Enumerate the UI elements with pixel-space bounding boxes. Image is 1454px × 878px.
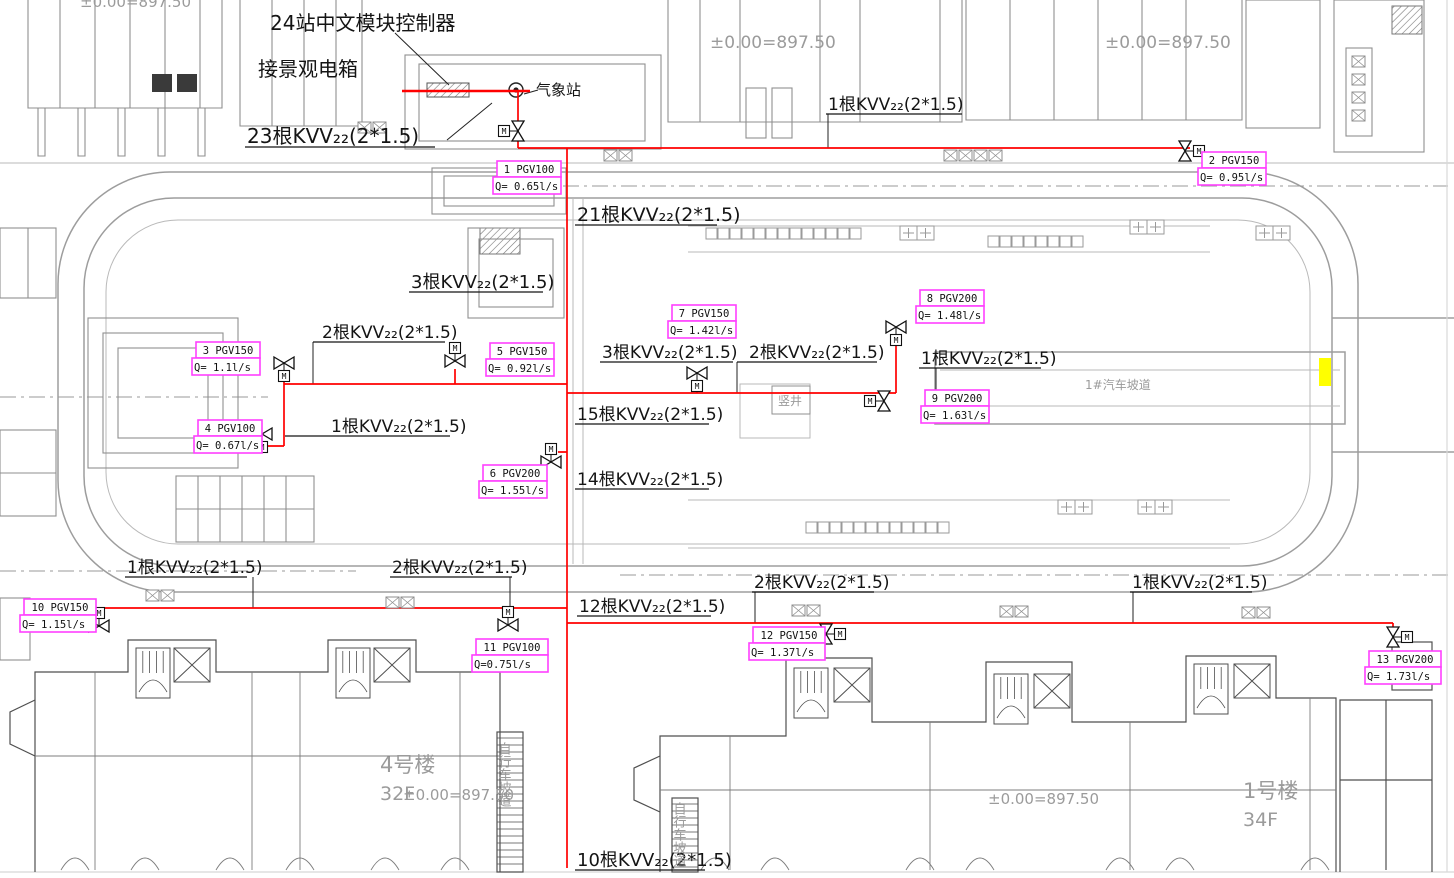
hatch-structure: [480, 228, 520, 254]
motorized-valve-icon: M: [687, 367, 707, 392]
landscape-box-note: 接景观电箱: [258, 57, 358, 81]
top-buildings: [28, 0, 1424, 156]
pgv-valve-label: 3 PGV150Q= 1.1l/s: [192, 342, 260, 375]
parking-cell: [1000, 236, 1011, 247]
pgv-flow-label: Q= 0.65l/s: [495, 181, 558, 193]
drain-grate-icon: [1242, 607, 1255, 618]
valve-actuator-label: M: [838, 630, 843, 639]
valve-actuator-label: M: [506, 608, 511, 617]
highlight-marker: [1319, 358, 1331, 386]
kvv-cable-label: 2根KVV₂₂(2*1.5): [392, 558, 527, 578]
pgv-valve-label: 2 PGV150Q= 0.95l/s: [1198, 152, 1266, 185]
building-1-floors: 34F: [1243, 809, 1278, 831]
pgv-valve-label: 11 PGV100Q=0.75l/s: [472, 639, 548, 672]
pgv-valve-label: 12 PGV150Q= 1.37l/s: [749, 627, 825, 660]
pgv-id-label: 10 PGV150: [32, 602, 89, 614]
pgv-id-label: 1 PGV100: [504, 164, 555, 176]
pgv-valve-label: 8 PGV200Q= 1.48l/s: [916, 290, 984, 323]
motorized-valve-icon: M: [499, 121, 525, 141]
entrance-porch: [634, 756, 660, 812]
building-4: [10, 640, 523, 872]
level-note-top-right: ±0.00=897.50: [1105, 33, 1231, 53]
drain-grate-icon: [1257, 607, 1270, 618]
pgv-valve-label: 9 PGV200Q= 1.63l/s: [921, 390, 989, 423]
motorized-valve-icon: M: [445, 343, 465, 368]
drain-grate-icon: [386, 597, 399, 608]
parking-cell: [1036, 236, 1047, 247]
valve-actuator-label: M: [282, 372, 287, 381]
parking-strips: [706, 228, 1083, 533]
controller-note: 24站中文模块控制器: [270, 11, 455, 35]
motorized-valve-icon: M: [1387, 627, 1413, 647]
parking-cell: [742, 228, 753, 239]
kvv-cable-labels: 23根KVV₂₂(2*1.5)1根KVV₂₂(2*1.5)21根KVV₂₂(2*…: [125, 95, 1267, 871]
pgv-flow-label: Q= 0.67l/s: [196, 440, 259, 452]
valve-actuator-label: M: [868, 397, 873, 406]
car-ramp-note: 1#汽车坡道: [1085, 377, 1151, 392]
drain-grate-icon: [792, 605, 805, 616]
red-cable-network: [100, 91, 1393, 868]
pgv-flow-label: Q= 0.95l/s: [1200, 172, 1263, 184]
drain-grate-icon: [1352, 92, 1365, 103]
drain-grate-icon: [604, 150, 617, 161]
parking-cell: [1024, 236, 1035, 247]
drain-grate-icon: [807, 605, 820, 616]
drain-grate-icon: [1015, 606, 1028, 617]
parking-cell: [826, 228, 837, 239]
drain-grate-icon: [1352, 74, 1365, 85]
pgv-valve-label: 5 PGV150Q= 0.92l/s: [486, 343, 554, 376]
entrance-porch: [10, 700, 35, 756]
level-note-top-center: ±0.00=897.50: [710, 33, 836, 53]
pgv-id-label: 5 PGV150: [497, 346, 548, 358]
motorized-valve-icon: M: [1179, 141, 1205, 161]
parking-cell: [890, 522, 901, 533]
pgv-valve-label: 10 PGV150Q= 1.15l/s: [20, 599, 96, 632]
pgv-id-label: 7 PGV150: [679, 308, 730, 320]
parking-cell: [778, 228, 789, 239]
drain-grate-icon: [974, 150, 987, 161]
parking-cell: [854, 522, 865, 533]
pgv-valve-label: 6 PGV200Q= 1.55l/s: [479, 465, 547, 498]
pgv-id-label: 9 PGV200: [932, 393, 983, 405]
parking-cell: [730, 228, 741, 239]
drain-grate-icon: [161, 590, 174, 601]
valve-actuator-label: M: [1405, 633, 1410, 642]
parking-cell: [706, 228, 717, 239]
parking-cell: [902, 522, 913, 533]
kvv-cable-label: 1根KVV₂₂(2*1.5): [1132, 573, 1267, 593]
kvv-cable-label: 1根KVV₂₂(2*1.5): [127, 558, 262, 578]
valve-actuator-label: M: [695, 382, 700, 391]
stair-icon: [336, 648, 370, 698]
parking-cell: [802, 228, 813, 239]
parking-cell: [1048, 236, 1059, 247]
parking-cell: [1072, 236, 1083, 247]
kvv-cable-label: 15根KVV₂₂(2*1.5): [577, 405, 723, 425]
kvv-cable-label: 3根KVV₂₂(2*1.5): [602, 343, 737, 363]
kvv-cable-label: 10根KVV₂₂(2*1.5): [577, 850, 732, 871]
bike-ramp-note-1: 自行车坡道: [496, 742, 512, 807]
parking-cell: [830, 522, 841, 533]
building-4-name: 4号楼: [380, 753, 435, 777]
parking-cell: [842, 522, 853, 533]
kvv-cable-label: 12根KVV₂₂(2*1.5): [579, 597, 725, 617]
parking-cell: [878, 522, 889, 533]
stair-icon: [994, 674, 1028, 724]
parking-cell: [818, 522, 829, 533]
pgv-valve-label: 7 PGV150Q= 1.42l/s: [668, 305, 736, 338]
kvv-cable-label: 2根KVV₂₂(2*1.5): [754, 573, 889, 593]
pgv-id-label: 8 PGV200: [927, 293, 978, 305]
kvv-cable-label: 1根KVV₂₂(2*1.5): [331, 417, 466, 437]
kvv-cable-label: 3根KVV₂₂(2*1.5): [411, 272, 554, 293]
valve-actuator-label: M: [97, 609, 102, 618]
kvv-cable-label: 14根KVV₂₂(2*1.5): [577, 470, 723, 490]
drain-grate-icon: [1000, 606, 1013, 617]
controller-compound: [405, 55, 661, 149]
pgv-valve-label: 13 PGV200Q= 1.73l/s: [1365, 651, 1441, 684]
parking-cell: [988, 236, 999, 247]
parking-cell: [850, 228, 861, 239]
stair-icon: [794, 668, 828, 718]
pgv-flow-label: Q= 1.73l/s: [1367, 671, 1430, 683]
pgv-valve-label: 1 PGV100Q= 0.65l/s: [493, 161, 561, 194]
electric-box: [177, 74, 197, 92]
site-plan-svg: MMMMMMMMMMMMM 23根KVV₂₂(2*1.5)1根KVV₂₂(2*1…: [0, 0, 1454, 878]
drain-grate-icon: [989, 150, 1002, 161]
parking-cell: [914, 522, 925, 533]
kvv-cable-label: 1根KVV₂₂(2*1.5): [828, 95, 963, 115]
stair-elevator-cores: [136, 648, 1270, 724]
pgv-flow-label: Q= 1.15l/s: [22, 619, 85, 631]
pgv-flow-label: Q= 1.42l/s: [670, 325, 733, 337]
building-4-floors: 32F: [380, 783, 415, 805]
motorized-valve-icon: M: [865, 391, 891, 411]
parking-cell: [754, 228, 765, 239]
pgv-flow-label: Q= 1.55l/s: [481, 485, 544, 497]
kvv-cable-label: 23根KVV₂₂(2*1.5): [247, 124, 419, 148]
pgv-flow-label: Q= 1.37l/s: [751, 647, 814, 659]
drain-grate-icon: [401, 597, 414, 608]
drain-grate-icon: [944, 150, 957, 161]
parking-cell: [806, 522, 817, 533]
building-1: [634, 656, 1336, 872]
level-note-bottom-mid: ±0.00=897.50: [988, 790, 1099, 808]
pgv-id-label: 12 PGV150: [761, 630, 818, 642]
motorized-valve-icon: M: [886, 321, 906, 346]
pgv-id-label: 2 PGV150: [1209, 155, 1260, 167]
shaft-note: 竖井: [778, 394, 802, 408]
drain-grate-icon: [959, 150, 972, 161]
kvv-cable-label: 21根KVV₂₂(2*1.5): [577, 204, 741, 226]
kvv-cable-label: 2根KVV₂₂(2*1.5): [749, 343, 884, 363]
electric-box: [152, 74, 172, 92]
level-note-top-left: ±0.00=897.50: [80, 0, 191, 11]
pgv-id-label: 13 PGV200: [1377, 654, 1434, 666]
site-plan-canvas: MMMMMMMMMMMMM 23根KVV₂₂(2*1.5)1根KVV₂₂(2*1…: [0, 0, 1454, 878]
pgv-id-label: 4 PGV100: [205, 423, 256, 435]
drain-grate-icon: [1352, 110, 1365, 121]
drain-grate-icon: [619, 150, 632, 161]
drain-grate-icon: [1352, 56, 1365, 67]
valve-actuator-label: M: [502, 127, 507, 136]
ramp-rungs: [497, 738, 698, 867]
pgv-id-label: 3 PGV150: [203, 345, 254, 357]
drain-grate-icon: [146, 590, 159, 601]
parking-cell: [1012, 236, 1023, 247]
parking-cell: [838, 228, 849, 239]
pgv-flow-label: Q= 1.1l/s: [194, 362, 251, 374]
parking-cell: [1060, 236, 1071, 247]
parking-cell: [866, 522, 877, 533]
parking-cell: [814, 228, 825, 239]
leader-kvv23: [447, 103, 492, 140]
bike-ramp-note-2: 自行车坡道: [671, 802, 687, 867]
motorized-valve-icon: M: [498, 607, 518, 632]
pgv-valve-label: 4 PGV100Q= 0.67l/s: [194, 420, 262, 453]
stair-icon: [136, 648, 170, 698]
pgv-id-label: 11 PGV100: [484, 642, 541, 654]
valve-actuator-label: M: [453, 344, 458, 353]
building-1-name: 1号楼: [1243, 779, 1298, 803]
pgv-flow-label: Q= 1.63l/s: [923, 410, 986, 422]
valve-actuator-label: M: [1197, 147, 1202, 156]
parking-cell: [938, 522, 949, 533]
valve-actuator-label: M: [894, 336, 899, 345]
kvv-cable-label: 1根KVV₂₂(2*1.5): [921, 349, 1056, 369]
motorized-valve-icon: M: [274, 357, 294, 382]
valve-actuator-label: M: [549, 445, 554, 454]
leader-controller: [395, 33, 449, 85]
pgv-flow-label: Q= 1.48l/s: [918, 310, 981, 322]
stair-icon: [1194, 664, 1228, 714]
pgv-flow-label: Q=0.75l/s: [474, 659, 531, 671]
weather-station-note: 气象站: [536, 81, 581, 99]
parking-cell: [718, 228, 729, 239]
parking-cell: [790, 228, 801, 239]
kvv-cable-label: 2根KVV₂₂(2*1.5): [322, 323, 457, 343]
parking-cell: [766, 228, 777, 239]
pgv-id-label: 6 PGV200: [490, 468, 541, 480]
parking-cell: [926, 522, 937, 533]
pgv-flow-label: Q= 0.92l/s: [488, 363, 551, 375]
